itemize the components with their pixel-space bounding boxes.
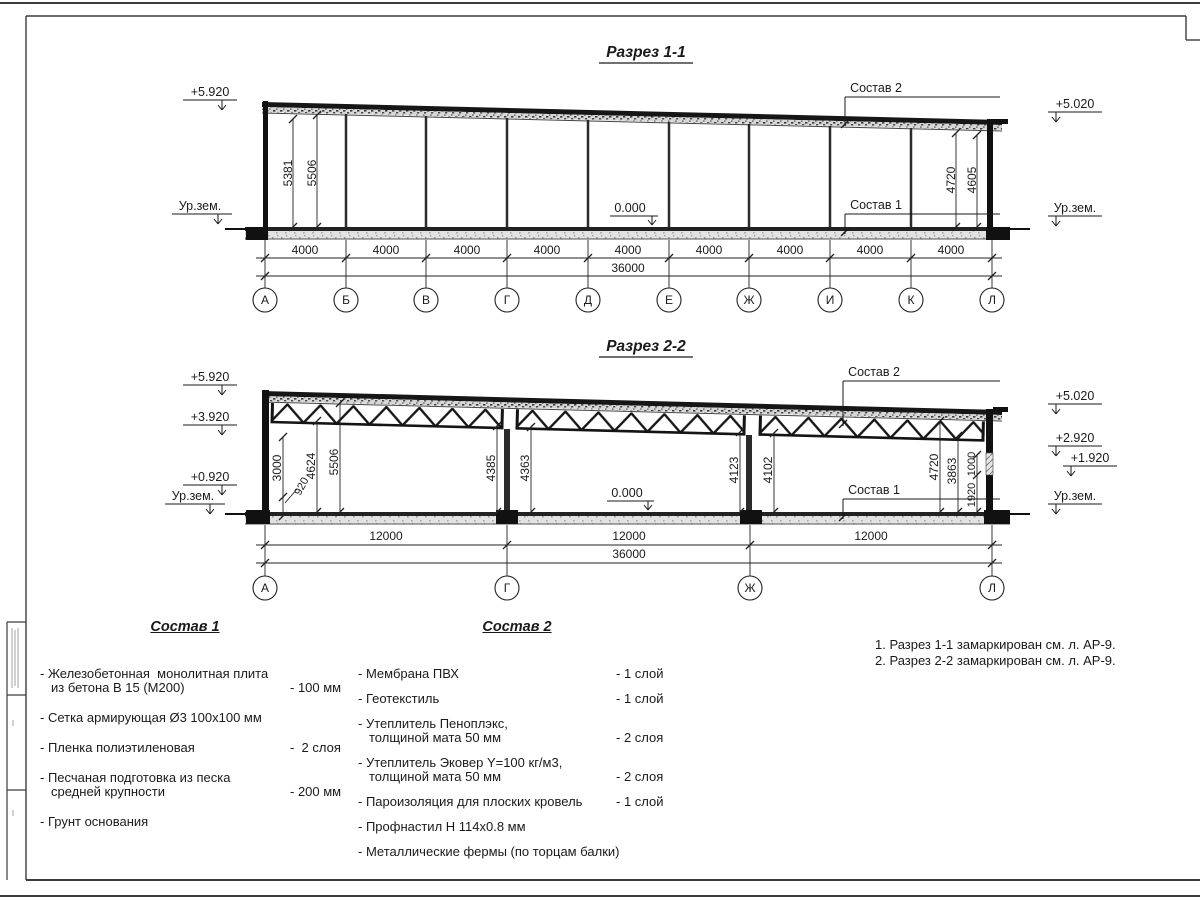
svg-text:+2.920: +2.920 bbox=[1056, 431, 1095, 445]
svg-text:4000: 4000 bbox=[373, 243, 400, 257]
ground-level-mark: Ур.зем. bbox=[1048, 201, 1102, 226]
svg-text:Ур.зем.: Ур.зем. bbox=[1054, 489, 1096, 503]
notes-block: 1. Разрез 1-1 замаркирован см. л. АР-9. … bbox=[875, 637, 1175, 668]
column-g bbox=[504, 429, 510, 513]
svg-text:4102: 4102 bbox=[761, 456, 775, 483]
floor-slab-top bbox=[245, 227, 1010, 231]
svg-text:4000: 4000 bbox=[454, 243, 481, 257]
svg-text:4123: 4123 bbox=[727, 456, 741, 483]
ground-level-mark: Ур.зем. bbox=[165, 489, 225, 514]
svg-text:12000: 12000 bbox=[369, 529, 403, 543]
footing-g bbox=[496, 510, 518, 524]
wall-left bbox=[263, 101, 268, 228]
elevation-mark: +5.020 bbox=[1048, 389, 1102, 414]
svg-text:0.000: 0.000 bbox=[611, 486, 642, 500]
roof-edge-hook bbox=[993, 407, 1008, 412]
list-item: - Утеплитель Эковер Y=100 кг/м3, толщино… bbox=[358, 756, 678, 784]
svg-text:Д: Д bbox=[584, 293, 592, 307]
svg-text:4000: 4000 bbox=[857, 243, 884, 257]
note-line: 1. Разрез 1-1 замаркирован см. л. АР-9. bbox=[875, 637, 1175, 653]
svg-text:4385: 4385 bbox=[484, 454, 498, 481]
svg-text:А: А bbox=[261, 581, 269, 595]
svg-text:Е: Е bbox=[665, 293, 673, 307]
list-item: - Профнастил Н 114х0.8 мм bbox=[358, 820, 678, 834]
svg-text:К: К bbox=[908, 293, 915, 307]
svg-text:5381: 5381 bbox=[281, 159, 295, 186]
svg-text:4720: 4720 bbox=[944, 166, 958, 193]
list-item: - Геотекстиль - 1 слой bbox=[358, 692, 678, 706]
floor-slab bbox=[245, 516, 1010, 524]
building-section-1-1 bbox=[225, 101, 1030, 240]
section-2-2: Разрез 2-2 bbox=[165, 338, 1117, 600]
sostav1-list: Состав 1 - Железобетонная монолитная пли… bbox=[40, 620, 375, 845]
item-value: - 2 слоя bbox=[616, 731, 678, 745]
frame-stamp-column bbox=[7, 622, 26, 880]
list-item: - Утеплитель Пеноплэкс, толщиной мата 50… bbox=[358, 717, 678, 745]
svg-text:4605: 4605 bbox=[965, 166, 979, 193]
svg-text:4000: 4000 bbox=[777, 243, 804, 257]
list-item: - Мембрана ПВХ - 1 слой bbox=[358, 667, 678, 681]
svg-text:1000: 1000 bbox=[966, 452, 978, 476]
list-item: - Пленка полиэтиленовая - 2 слоя bbox=[40, 741, 375, 755]
list-item: - Пароизоляция для плоских кровель - 1 с… bbox=[358, 795, 678, 809]
svg-text:Л: Л bbox=[988, 293, 996, 307]
svg-text:+1.920: +1.920 bbox=[1071, 451, 1110, 465]
wall-left bbox=[262, 390, 269, 519]
axis-bubbles-1-1: А Б В Г Д Е Ж И К Л bbox=[253, 288, 1004, 312]
svg-text:+5.920: +5.920 bbox=[191, 85, 230, 99]
svg-text:Состав 1: Состав 1 bbox=[848, 483, 900, 497]
elevation-mark: +1.920 bbox=[1063, 451, 1117, 476]
svg-text:И: И bbox=[826, 293, 835, 307]
drawing-sheet: Разрез 1-1 bbox=[0, 0, 1200, 900]
svg-text:4000: 4000 bbox=[292, 243, 319, 257]
svg-text:А: А bbox=[261, 293, 269, 307]
svg-text:4720: 4720 bbox=[927, 453, 941, 480]
svg-text:4000: 4000 bbox=[615, 243, 642, 257]
section-1-1: Разрез 1-1 bbox=[172, 44, 1102, 312]
footing-left bbox=[246, 510, 270, 524]
ground-level-mark: Ур.зем. bbox=[172, 199, 232, 224]
column-zh bbox=[746, 435, 752, 513]
svg-text:Л: Л bbox=[988, 581, 996, 595]
svg-text:Ур.зем.: Ур.зем. bbox=[1054, 201, 1096, 215]
svg-text:0.000: 0.000 bbox=[614, 201, 645, 215]
item-value: - 2 слоя bbox=[616, 770, 678, 784]
svg-text:Б: Б bbox=[342, 293, 350, 307]
svg-text:4000: 4000 bbox=[938, 243, 965, 257]
svg-text:4624: 4624 bbox=[304, 452, 318, 479]
svg-text:В: В bbox=[422, 293, 430, 307]
wall-right bbox=[987, 119, 993, 228]
svg-text:5506: 5506 bbox=[327, 448, 341, 475]
svg-text:5506: 5506 bbox=[305, 159, 319, 186]
svg-text:Состав 2: Состав 2 bbox=[848, 365, 900, 379]
svg-text:4000: 4000 bbox=[534, 243, 561, 257]
svg-text:Г: Г bbox=[504, 581, 511, 595]
svg-text:+3.920: +3.920 bbox=[191, 410, 230, 424]
svg-text:+5.020: +5.020 bbox=[1056, 97, 1095, 111]
svg-text:3863: 3863 bbox=[945, 457, 959, 484]
footing-left bbox=[246, 227, 268, 240]
svg-text:Ж: Ж bbox=[744, 581, 755, 595]
list-item: - Железобетонная монолитная плита из бет… bbox=[40, 667, 375, 695]
building-section-2-2 bbox=[225, 390, 1030, 524]
footing-right bbox=[986, 227, 1010, 240]
item-value: - 1 слой bbox=[616, 667, 678, 681]
zero-elevation-mark: 0.000 bbox=[610, 201, 658, 225]
roof-edge-hook bbox=[993, 119, 1008, 124]
svg-text:+5.020: +5.020 bbox=[1056, 389, 1095, 403]
item-value: - 1 слой bbox=[616, 795, 678, 809]
section-title: Разрез 1-1 bbox=[606, 44, 686, 61]
stamp-scribble bbox=[12, 628, 18, 816]
elevation-mark: +5.920 bbox=[183, 370, 237, 395]
svg-text:+5.920: +5.920 bbox=[191, 370, 230, 384]
list-item: - Металлические фермы (по торцам балки) bbox=[358, 845, 678, 859]
elevation-mark: +5.920 bbox=[183, 85, 237, 110]
floor-slab bbox=[245, 231, 1010, 239]
sostav2-title: Состав 2 bbox=[358, 620, 676, 634]
list-item: - Грунт основания bbox=[40, 815, 375, 829]
elevation-mark: +3.920 bbox=[183, 410, 237, 435]
footing-zh bbox=[740, 510, 762, 524]
svg-text:12000: 12000 bbox=[854, 529, 888, 543]
sostav2-list: Состав 2 - Мембрана ПВХ - 1 слой - Геоте… bbox=[358, 620, 678, 870]
section-title: Разрез 2-2 bbox=[606, 338, 686, 355]
window-opening bbox=[986, 453, 993, 475]
svg-text:Г: Г bbox=[504, 293, 511, 307]
svg-text:4000: 4000 bbox=[696, 243, 723, 257]
sostav1-title: Состав 1 bbox=[40, 620, 330, 634]
svg-text:Ж: Ж bbox=[743, 293, 754, 307]
footing-right bbox=[984, 510, 1010, 524]
svg-text:36000: 36000 bbox=[612, 547, 646, 561]
list-item: - Сетка армирующая Ø3 100х100 мм bbox=[40, 711, 375, 725]
dim-rows-2-2: 12000 12000 12000 36000 bbox=[256, 525, 1002, 576]
note-line: 2. Разрез 2-2 замаркирован см. л. АР-9. bbox=[875, 653, 1175, 669]
svg-text:4363: 4363 bbox=[518, 454, 532, 481]
svg-text:Состав 2: Состав 2 bbox=[850, 81, 902, 95]
axis-bubbles-2-2: А Г Ж Л bbox=[253, 576, 1004, 600]
svg-text:3000: 3000 bbox=[270, 454, 284, 481]
svg-text:12000: 12000 bbox=[612, 529, 646, 543]
floor-slab-top bbox=[245, 512, 1010, 516]
svg-text:Ур.зем.: Ур.зем. bbox=[172, 489, 214, 503]
svg-text:1920: 1920 bbox=[966, 483, 978, 507]
list-item: - Песчаная подготовка из песка средней к… bbox=[40, 771, 375, 799]
dim-rows-1-1: 4000 4000 4000 4000 4000 4000 4000 4000 … bbox=[256, 240, 1002, 288]
svg-text:Состав 1: Состав 1 bbox=[850, 198, 902, 212]
svg-text:+0.920: +0.920 bbox=[191, 470, 230, 484]
item-value: - 1 слой bbox=[616, 692, 678, 706]
elevation-mark: +5.020 bbox=[1048, 97, 1102, 122]
svg-text:36000: 36000 bbox=[611, 261, 645, 275]
leader-labels-1-1: Состав 2 Состав 1 bbox=[841, 81, 1000, 236]
svg-text:Ур.зем.: Ур.зем. bbox=[179, 199, 221, 213]
zero-elevation-mark: 0.000 bbox=[607, 486, 654, 510]
ground-level-mark: Ур.зем. bbox=[1048, 489, 1102, 514]
